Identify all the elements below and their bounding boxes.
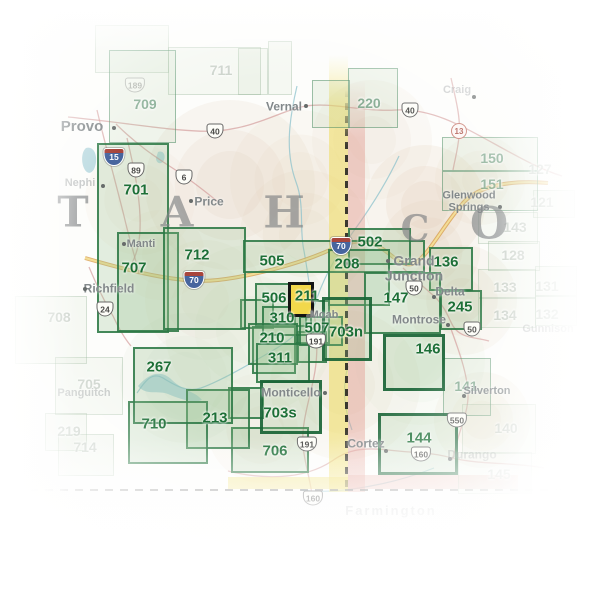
city-grand-junction: Grand Junction — [385, 253, 443, 282]
city-dot-provo — [112, 126, 116, 130]
map-box-label-310: 310 — [269, 310, 294, 327]
state-letter-c: C — [401, 208, 430, 250]
city-cortez: Cortez — [347, 438, 384, 451]
map-box-label-208: 208 — [334, 256, 359, 273]
city-dot-montrose — [446, 323, 450, 327]
city-dot-cortez — [384, 449, 388, 453]
interstate-shield-70: 70 — [184, 271, 205, 289]
map-box-label-708: 708 — [47, 309, 70, 325]
us-route-shield-189: 189 — [125, 78, 145, 93]
city-dot-monticello — [323, 391, 327, 395]
city-price: Price — [194, 196, 223, 209]
map-box-label-219: 219 — [57, 423, 80, 439]
city-dot-moab — [306, 314, 310, 318]
map-box-label-146: 146 — [415, 341, 440, 358]
map-box-label-144: 144 — [406, 430, 431, 447]
us-route-shield-191: 191 — [306, 334, 326, 349]
city-dot-manti — [122, 242, 126, 246]
city-vernal: Vernal — [266, 101, 302, 114]
us-route-shield-40: 40 — [402, 103, 419, 118]
state-route-shield-13: 13 — [451, 123, 467, 139]
map-box-label-505: 505 — [259, 253, 284, 270]
map-box-label-245: 245 — [447, 299, 472, 316]
map-index-canvas: 7117057082197141431281331341401451211271… — [0, 0, 600, 600]
interstate-shield-70: 70 — [331, 237, 352, 255]
us-route-shield-160: 160 — [303, 491, 323, 506]
city-richfield: Richfield — [84, 283, 135, 296]
city-farmington: Farmington — [345, 504, 437, 518]
map-box-label-706: 706 — [262, 443, 287, 460]
map-box-label-502: 502 — [357, 234, 382, 251]
us-route-shield-89: 89 — [128, 163, 145, 178]
map-box-label-220: 220 — [357, 95, 380, 111]
map-box-label-709: 709 — [133, 96, 156, 112]
city-craig: Craig — [443, 85, 471, 97]
city-delta: Delta — [435, 286, 464, 299]
map-box-label-134: 134 — [493, 307, 516, 323]
city-durango: Durango — [447, 449, 496, 462]
us-route-shield-160: 160 — [411, 447, 431, 462]
city-dot-grand-junction — [386, 259, 390, 263]
map-box-label-703n: 703n — [329, 324, 363, 341]
city-dot-durango — [448, 457, 452, 461]
map-box-label-213: 213 — [202, 410, 227, 427]
map-box-label-210: 210 — [259, 330, 284, 347]
us-route-shield-40: 40 — [207, 124, 224, 139]
labels-layer: 7117057082197141431281331341401451211271… — [0, 0, 600, 600]
map-box-label-267: 267 — [146, 359, 171, 376]
us-route-shield-550: 550 — [447, 413, 467, 428]
us-route-shield-24: 24 — [97, 302, 114, 317]
city-dot-vernal — [304, 104, 308, 108]
map-box-label-711: 711 — [210, 62, 233, 78]
state-letter-o: O — [470, 199, 508, 250]
map-box-label-127: 127 — [528, 161, 551, 177]
us-route-shield-191: 191 — [297, 437, 317, 452]
map-box-label-703s: 703s — [263, 405, 296, 422]
map-box-label-710: 710 — [141, 416, 166, 433]
map-box-label-121: 121 — [530, 194, 553, 210]
interstate-shield-15: 15 — [104, 148, 125, 166]
us-route-shield-50: 50 — [406, 281, 423, 296]
city-gunnison: Gunnison — [522, 324, 573, 336]
us-route-shield-50: 50 — [464, 322, 481, 337]
state-letter-t: T — [57, 188, 88, 237]
map-box-label-506: 506 — [261, 290, 286, 307]
state-letter-h: H — [263, 188, 305, 239]
map-box-label-311: 311 — [268, 350, 292, 367]
map-box-label-133: 133 — [493, 279, 516, 295]
map-box-label-132: 132 — [535, 306, 558, 322]
map-box-label-140: 140 — [494, 420, 517, 436]
city-panguitch: Panguitch — [57, 388, 110, 400]
city-montrose: Montrose — [392, 314, 446, 327]
map-box-label-150: 150 — [480, 150, 503, 166]
us-route-shield-6: 6 — [176, 170, 193, 185]
city-dot-delta — [432, 295, 436, 299]
city-manti: Manti — [127, 239, 156, 251]
state-letter-a: A — [161, 188, 194, 237]
city-provo: Provo — [61, 119, 104, 135]
city-silverton: Silverton — [463, 386, 510, 398]
city-dot-silverton — [462, 394, 466, 398]
map-box-label-147: 147 — [383, 290, 408, 307]
map-box-label-712: 712 — [184, 247, 209, 264]
city-dot-richfield — [83, 287, 87, 291]
city-dot-craig — [472, 95, 476, 99]
map-box-label-714: 714 — [73, 439, 96, 455]
map-box-label-701: 701 — [123, 182, 148, 199]
city-monticello: Monticello — [261, 387, 320, 400]
map-box-label-707: 707 — [121, 260, 146, 277]
map-box-label-211: 211 — [295, 288, 319, 305]
city-moab: Moab — [310, 310, 339, 322]
city-dot-nephi — [101, 184, 105, 188]
map-box-label-131: 131 — [535, 278, 558, 294]
map-box-label-145: 145 — [487, 466, 510, 482]
